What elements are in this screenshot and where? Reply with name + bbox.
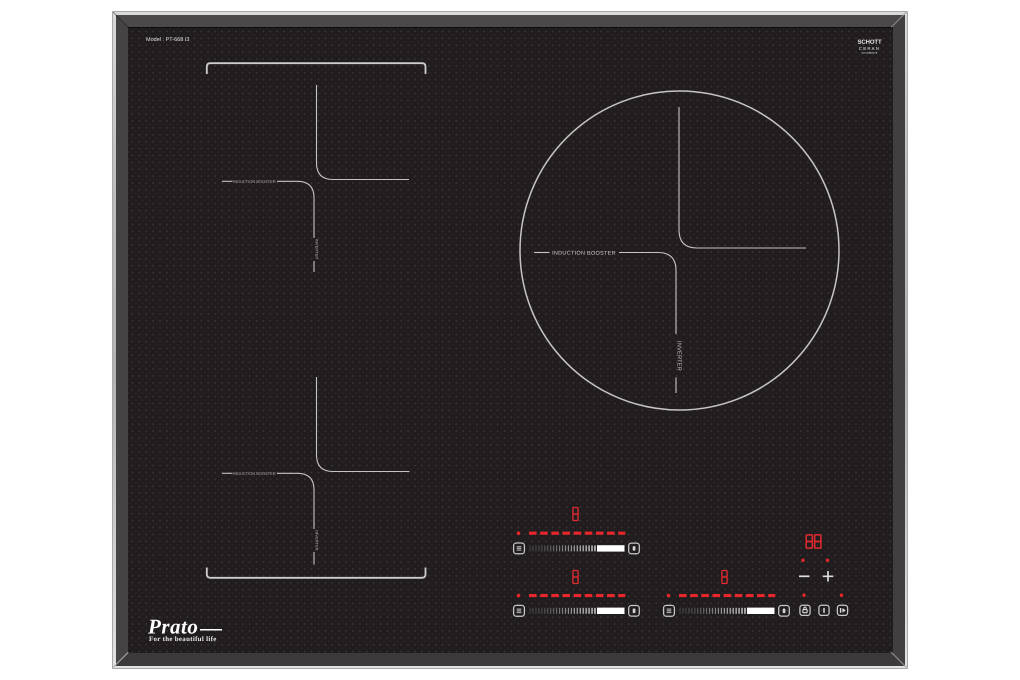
svg-text:Prato: Prato [147,614,198,638]
svg-text:INDUCTION BOOSTER: INDUCTION BOOSTER [233,180,276,184]
svg-text:GH 9999078: GH 9999078 [862,51,878,55]
svg-text:For the beautiful life: For the beautiful life [149,636,217,643]
svg-text:INDUCTION BOOSTER: INDUCTION BOOSTER [233,472,276,476]
svg-text:Model : PT-668 I3: Model : PT-668 I3 [146,37,189,43]
svg-text:INDUCTION BOOSTER: INDUCTION BOOSTER [552,251,616,257]
svg-text:CERAN: CERAN [859,46,880,51]
svg-text:INVERTER: INVERTER [314,239,319,259]
svg-text:SCHOTT: SCHOTT [857,40,882,46]
svg-text:INVERTER: INVERTER [314,530,319,550]
svg-text:INVERTER: INVERTER [676,341,682,371]
